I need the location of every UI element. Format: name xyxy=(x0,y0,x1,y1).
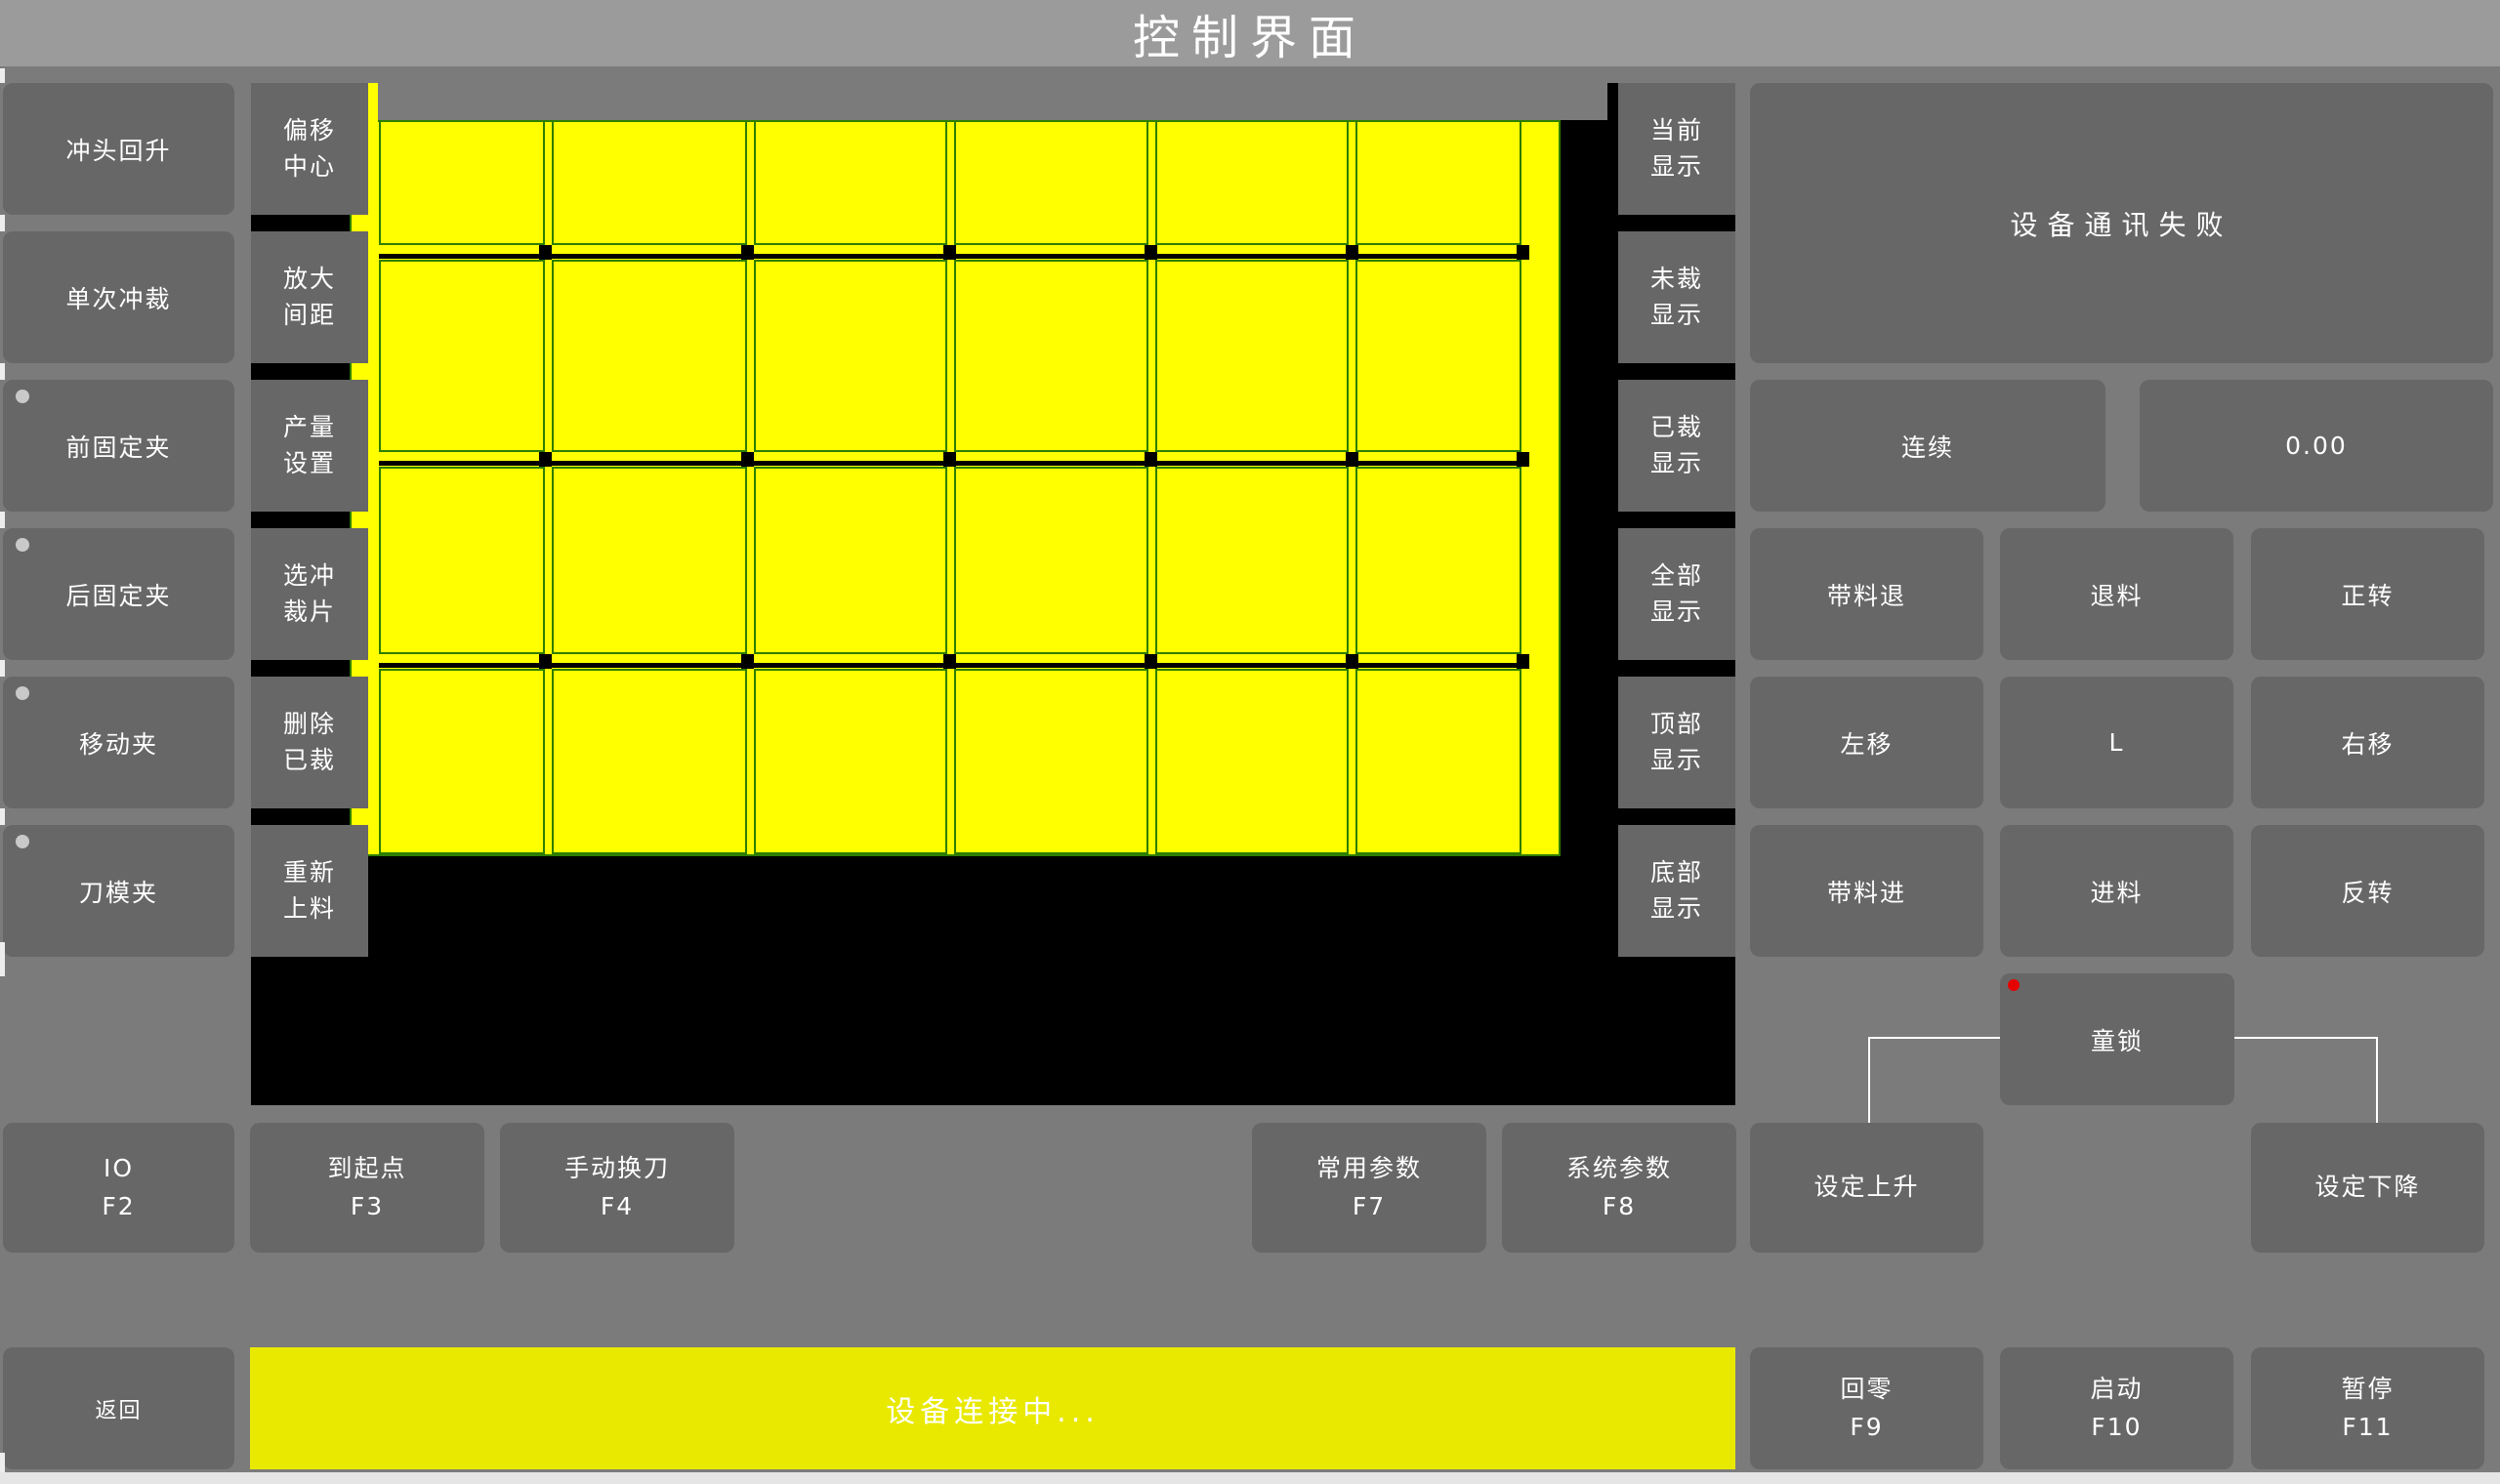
edge-mark xyxy=(0,215,5,231)
sheet-cell[interactable] xyxy=(1155,260,1349,452)
device-message-box: 设备通讯失败 xyxy=(1750,83,2493,363)
cut-mark xyxy=(943,452,956,467)
fkey-to-origin[interactable]: 到起点F3 xyxy=(250,1123,484,1253)
sheet-cell[interactable] xyxy=(754,120,947,245)
button-label: 返回 xyxy=(95,1393,142,1424)
fkey-label: 常用参数 xyxy=(1316,1150,1422,1188)
button-label: 顶部显示 xyxy=(1648,707,1705,778)
edge-mark xyxy=(0,512,5,528)
sheet-cell[interactable] xyxy=(1355,120,1521,245)
cut-mark xyxy=(943,654,956,669)
fkey-key: F3 xyxy=(351,1188,384,1226)
button-rear-clamp[interactable]: 后固定夹 xyxy=(3,528,234,660)
button-show-current[interactable]: 当前显示 xyxy=(1618,83,1735,215)
fkey-key: F9 xyxy=(1850,1409,1883,1447)
button-show-all[interactable]: 全部显示 xyxy=(1618,528,1735,660)
fkey-key: F4 xyxy=(601,1188,634,1226)
fkey-manual-tool-change[interactable]: 手动换刀F4 xyxy=(500,1123,734,1253)
cut-mark xyxy=(1145,452,1157,467)
sheet-cell[interactable] xyxy=(552,260,747,452)
sheet-cell[interactable] xyxy=(954,669,1148,854)
control-screen: 控制界面 冲头回升 单次冲裁 前固定夹 后固定夹 移动夹 刀模夹 偏移中心 放大… xyxy=(0,0,2500,1484)
device-message-text: 设备通讯失败 xyxy=(2010,204,2232,243)
fkey-key: F11 xyxy=(2342,1409,2393,1447)
button-label: 移动夹 xyxy=(79,725,158,761)
fkey-label: 到起点 xyxy=(327,1150,406,1188)
sheet-cell[interactable] xyxy=(1355,467,1521,654)
button-child-lock[interactable]: 童锁 xyxy=(2000,973,2234,1105)
cut-mark xyxy=(1346,245,1358,260)
edge-mark xyxy=(0,363,5,380)
button-label: 放大间距 xyxy=(281,262,338,333)
fkey-common-params[interactable]: 常用参数F7 xyxy=(1252,1123,1486,1253)
button-label: 左移 xyxy=(1840,725,1893,761)
indicator-dot xyxy=(16,835,29,848)
title-bar: 控制界面 xyxy=(0,0,2500,66)
sheet-cell[interactable] xyxy=(954,120,1148,245)
button-label: 全部显示 xyxy=(1648,558,1705,630)
button-punch-raise[interactable]: 冲头回升 xyxy=(3,83,234,215)
sheet-cell[interactable] xyxy=(1155,120,1349,245)
sheet-edge-tab xyxy=(368,83,378,122)
jog-tape-back[interactable]: 带料退 xyxy=(1750,528,1983,660)
button-show-top[interactable]: 顶部显示 xyxy=(1618,677,1735,808)
button-output-setting[interactable]: 产量设置 xyxy=(251,380,368,512)
button-reload-material[interactable]: 重新上料 xyxy=(251,825,368,957)
cut-mark xyxy=(1517,245,1529,260)
fkey-io[interactable]: IOF2 xyxy=(3,1123,234,1253)
fkey-start[interactable]: 启动F10 xyxy=(2000,1347,2233,1469)
sheet-cell[interactable] xyxy=(379,669,545,854)
jog-move-right[interactable]: 右移 xyxy=(2251,677,2484,808)
page-title: 控制界面 xyxy=(1133,0,1367,67)
edge-mark xyxy=(0,660,5,677)
button-label: 选冲裁片 xyxy=(281,558,338,630)
button-show-uncut[interactable]: 未裁显示 xyxy=(1618,231,1735,363)
value-text: 0.00 xyxy=(2285,432,2348,460)
sheet-cell[interactable] xyxy=(954,260,1148,452)
sheet-cell[interactable] xyxy=(552,120,747,245)
fkey-key: F7 xyxy=(1353,1188,1386,1226)
cut-mark xyxy=(539,654,552,669)
cut-mark xyxy=(539,452,552,467)
button-label: 退料 xyxy=(2090,577,2143,612)
sheet-cell[interactable] xyxy=(1355,260,1521,452)
cut-mark xyxy=(1346,654,1358,669)
value-display[interactable]: 0.00 xyxy=(2140,380,2493,512)
fkey-label: 回零 xyxy=(1840,1371,1893,1409)
jog-forward-rotate[interactable]: 正转 xyxy=(2251,528,2484,660)
cut-mark xyxy=(1346,452,1358,467)
fkey-label: 暂停 xyxy=(2341,1371,2394,1409)
lock-connector-left-v xyxy=(1868,1037,1870,1123)
button-label: L xyxy=(2109,728,2125,757)
cut-mark xyxy=(741,654,754,669)
jog-feed[interactable]: 进料 xyxy=(2000,825,2233,957)
fkey-key: F8 xyxy=(1603,1188,1636,1226)
fkey-system-params[interactable]: 系统参数F8 xyxy=(1502,1123,1736,1253)
sheet-cell[interactable] xyxy=(1355,669,1521,854)
sheet-cell[interactable] xyxy=(379,260,545,452)
button-front-clamp[interactable]: 前固定夹 xyxy=(3,380,234,512)
button-label: 刀模夹 xyxy=(79,874,158,909)
button-set-fall[interactable]: 设定下降 xyxy=(2251,1123,2484,1253)
button-label: 单次冲裁 xyxy=(65,280,171,315)
button-moving-clamp[interactable]: 移动夹 xyxy=(3,677,234,808)
button-show-bottom[interactable]: 底部显示 xyxy=(1618,825,1735,957)
sheet-cell[interactable] xyxy=(754,669,947,854)
button-label: 带料退 xyxy=(1827,577,1906,612)
jog-l-button[interactable]: L xyxy=(2000,677,2233,808)
button-die-clamp[interactable]: 刀模夹 xyxy=(3,825,234,957)
lock-connector-right-v xyxy=(2376,1037,2378,1123)
fkey-label: 手动换刀 xyxy=(564,1150,670,1188)
button-label: 已裁显示 xyxy=(1648,410,1705,481)
indicator-dot xyxy=(16,390,29,403)
button-enlarge-spacing[interactable]: 放大间距 xyxy=(251,231,368,363)
sheet-cell[interactable] xyxy=(379,120,545,245)
mode-button-continuous[interactable]: 连续 xyxy=(1750,380,2105,512)
edge-mark xyxy=(0,68,5,83)
button-label: 童锁 xyxy=(2091,1022,2144,1057)
fkey-pause[interactable]: 暂停F11 xyxy=(2251,1347,2484,1469)
button-label: 连续 xyxy=(1901,429,1954,464)
cut-mark xyxy=(539,245,552,260)
button-back[interactable]: 返回 xyxy=(3,1347,234,1469)
cut-mark xyxy=(943,245,956,260)
button-show-cut[interactable]: 已裁显示 xyxy=(1618,380,1735,512)
indicator-dot xyxy=(16,538,29,552)
sheet-cell[interactable] xyxy=(754,467,947,654)
button-label: 删除已裁 xyxy=(281,707,338,778)
sheet-cell[interactable] xyxy=(1155,669,1349,854)
connection-status-text: 设备连接中... xyxy=(886,1387,1100,1430)
button-label: 未裁显示 xyxy=(1648,262,1705,333)
lock-alert-dot xyxy=(2008,979,2020,991)
button-label: 产量设置 xyxy=(281,410,338,481)
sheet-cell[interactable] xyxy=(754,260,947,452)
cut-mark xyxy=(1517,452,1529,467)
fkey-label: 系统参数 xyxy=(1566,1150,1672,1188)
fkey-label: 启动 xyxy=(2090,1371,2143,1409)
button-offset-center[interactable]: 偏移中心 xyxy=(251,83,368,215)
button-label: 冲头回升 xyxy=(65,132,171,167)
button-label: 反转 xyxy=(2341,874,2394,909)
button-label: 底部显示 xyxy=(1648,855,1705,927)
sheet-cell[interactable] xyxy=(552,669,747,854)
fkey-home[interactable]: 回零F9 xyxy=(1750,1347,1983,1469)
cut-mark xyxy=(1145,654,1157,669)
cut-mark xyxy=(1517,654,1529,669)
button-delete-cut[interactable]: 删除已裁 xyxy=(251,677,368,808)
fkey-key: F10 xyxy=(2091,1409,2142,1447)
edge-mark xyxy=(0,808,5,825)
jog-move-left[interactable]: 左移 xyxy=(1750,677,1983,808)
fkey-label: 设定上升 xyxy=(1813,1169,1919,1207)
lock-connector-left-h xyxy=(1868,1037,2000,1039)
material-preview xyxy=(350,120,1561,856)
sheet-cell[interactable] xyxy=(954,467,1148,654)
jog-tape-feed[interactable]: 带料进 xyxy=(1750,825,1983,957)
fkey-key: F2 xyxy=(102,1188,135,1226)
sheet-cell[interactable] xyxy=(552,467,747,654)
cut-mark xyxy=(1145,245,1157,260)
button-single-punch[interactable]: 单次冲裁 xyxy=(3,231,234,363)
edge-mark xyxy=(0,1453,5,1472)
indicator-dot xyxy=(16,686,29,700)
jog-unload[interactable]: 退料 xyxy=(2000,528,2233,660)
fkey-label: IO xyxy=(104,1150,134,1188)
button-label: 带料进 xyxy=(1827,874,1906,909)
connection-status-bar: 设备连接中... xyxy=(250,1347,1735,1469)
cut-mark xyxy=(741,452,754,467)
jog-reverse-rotate[interactable]: 反转 xyxy=(2251,825,2484,957)
button-select-piece[interactable]: 选冲裁片 xyxy=(251,528,368,660)
button-label: 进料 xyxy=(2090,874,2143,909)
button-label: 前固定夹 xyxy=(65,429,171,464)
cut-mark xyxy=(741,245,754,260)
button-set-rise[interactable]: 设定上升 xyxy=(1750,1123,1983,1253)
sheet-cell[interactable] xyxy=(1155,467,1349,654)
button-label: 正转 xyxy=(2341,577,2394,612)
lock-connector-right-h xyxy=(2234,1037,2376,1039)
sheet-cell[interactable] xyxy=(379,467,545,654)
button-label: 偏移中心 xyxy=(281,113,338,185)
bottom-edge-strip xyxy=(0,1472,2500,1484)
edge-mark xyxy=(0,942,5,976)
button-label: 重新上料 xyxy=(281,855,338,927)
fkey-label: 设定下降 xyxy=(2314,1169,2420,1207)
button-label: 当前显示 xyxy=(1648,113,1705,185)
button-label: 右移 xyxy=(2341,725,2394,761)
button-label: 后固定夹 xyxy=(65,577,171,612)
